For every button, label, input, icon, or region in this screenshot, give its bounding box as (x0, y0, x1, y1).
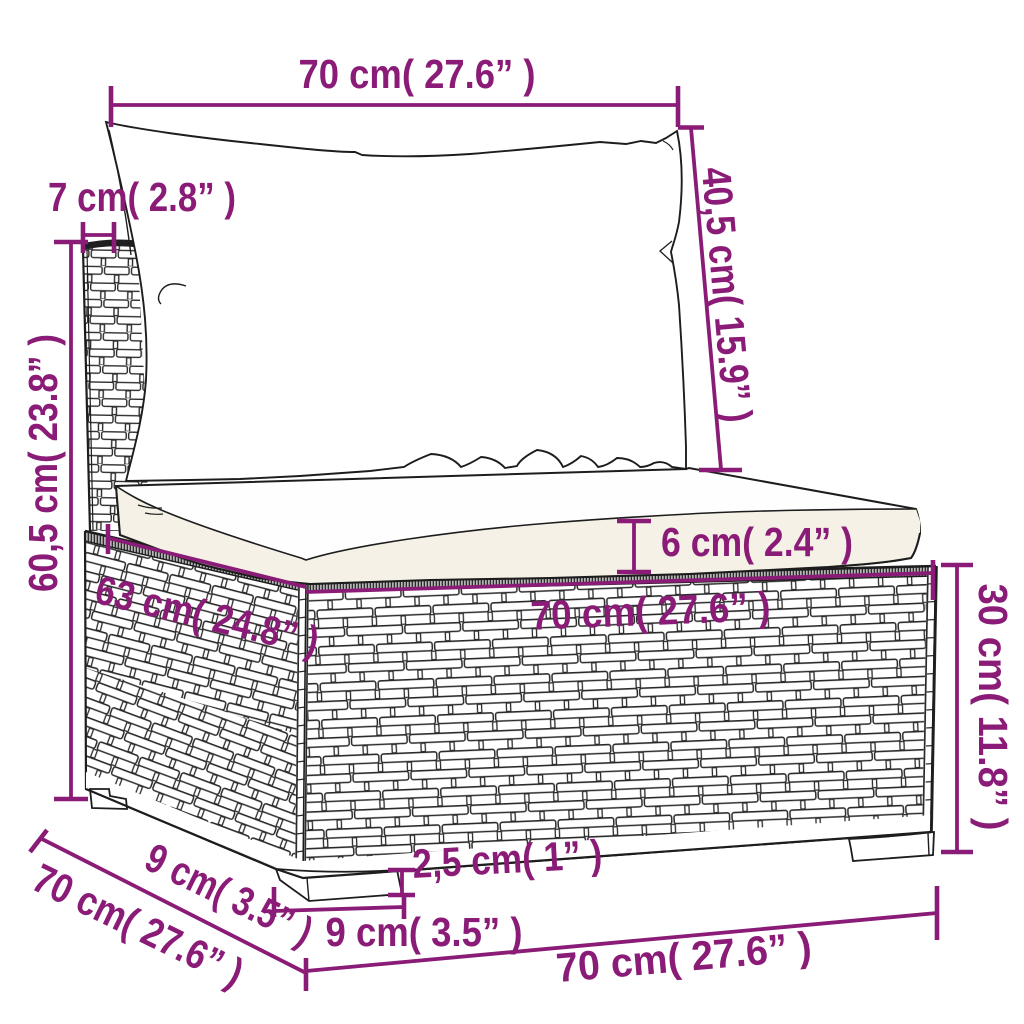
svg-text:6 cm( 2.4” ): 6 cm( 2.4” ) (661, 519, 853, 565)
svg-text:9 cm( 3.5” ): 9 cm( 3.5” ) (326, 909, 523, 955)
svg-text:7 cm( 2.8” ): 7 cm( 2.8” ) (48, 174, 236, 220)
svg-text:60,5 cm( 23.8” ): 60,5 cm( 23.8” ) (20, 334, 66, 592)
svg-text:70 cm( 27.6” ): 70 cm( 27.6” ) (530, 583, 772, 639)
svg-text:70 cm( 27.6” ): 70 cm( 27.6” ) (299, 51, 536, 97)
svg-text:30 cm( 11.8” ): 30 cm( 11.8” ) (970, 584, 1016, 831)
